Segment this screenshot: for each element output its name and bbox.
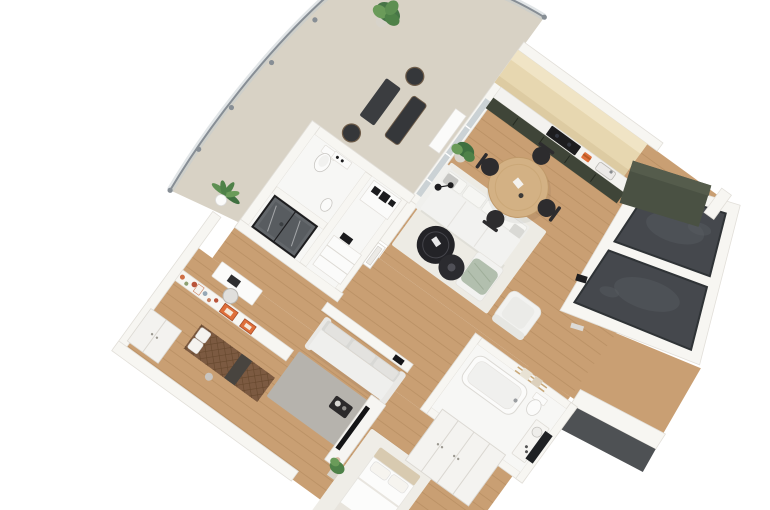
floorplan-render — [0, 0, 770, 510]
render-canvas — [0, 0, 770, 510]
